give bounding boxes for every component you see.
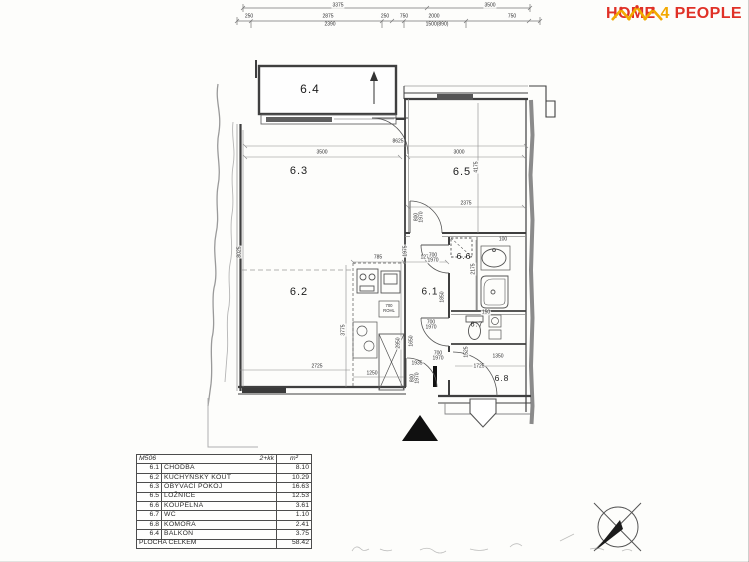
area-unit-header: m² [277,455,312,464]
table-row: 6.1CHODBA8.10 [137,464,312,473]
cell-name: BALKON [162,530,277,539]
logo-word-people: PEOPLE [675,5,742,22]
cell-area: 1.10 [277,511,312,520]
table-row: 6.3OBÝVACÍ POKOJ16.63 [137,483,312,492]
cell-name: KUCHYŇSKÝ KOUT [162,473,277,482]
table-row: 6.5LOŽNICE12.53 [137,492,312,501]
cell-code: 6.8 [137,520,162,529]
total-value: 58.42 [277,539,312,548]
table-row: 6.8KOMORA2.41 [137,520,312,529]
cell-area: 3.61 [277,501,312,510]
cell-area: 16.63 [277,483,312,492]
balcony-outline [256,60,396,114]
floor-plan-drawing [0,0,749,562]
layout-type: 2+kk [259,456,274,463]
cell-area: 12.53 [277,492,312,501]
outer-walls [237,86,555,424]
cell-name: KOMORA [162,520,277,529]
kitchen-fixtures [353,263,404,390]
handwritten-scribble [352,534,632,553]
bathroom-fixtures [451,238,510,308]
top-dimension-chains [235,4,542,28]
cell-name: WC [162,511,277,520]
cell-code: 6.4 [137,530,162,539]
shower [481,276,508,308]
crown-icon [605,5,669,22]
storage-door-leaf [470,399,496,427]
cell-area: 2.41 [277,520,312,529]
cell-name: KOUPELNA [162,501,277,510]
cell-code: 6.3 [137,483,162,492]
table-row: 6.4BALKON3.75 [137,530,312,539]
unit-code: M506 [139,456,156,463]
cell-code: 6.5 [137,492,162,501]
tall-cabinet [379,334,404,390]
toilet [469,323,481,340]
wc-fixtures [466,315,501,340]
cell-name: LOŽNICE [162,492,277,501]
scanned-floor-plan-sheet: 337535002502875250750200075023901500(890… [0,0,749,562]
cell-code: 6.7 [137,511,162,520]
cell-name: CHODBA [162,464,277,473]
cell-area: 10.29 [277,473,312,482]
area-table: M5062+kk m² 6.1CHODBA8.106.2KUCHYŇSKÝ KO… [136,454,312,549]
cell-area: 8.10 [277,464,312,473]
cell-code: 6.1 [137,464,162,473]
cell-name: OBÝVACÍ POKOJ [162,483,277,492]
cell-code: 6.6 [137,501,162,510]
table-header-left: M5062+kk [137,455,277,464]
cell-code: 6.2 [137,473,162,482]
entrance-door [406,358,437,387]
interior-doors [410,201,497,427]
window-band [261,115,396,124]
table-row: 6.2KUCHYŇSKÝ KOUT10.29 [137,473,312,482]
entrance-marker [402,415,438,441]
interior-walls [405,99,526,397]
table-row: 6.6KOUPELNA3.61 [137,501,312,510]
total-label: PLOCHA CELKEM [137,539,277,548]
home4people-logo: HOME 4 PEOPLE [605,5,743,23]
table-header-row: M5062+kk m² [137,455,312,464]
table-row: 6.7WC1.10 [137,511,312,520]
compass-icon [594,503,641,551]
cell-area: 3.75 [277,530,312,539]
area-table-body: M5062+kk m² 6.1CHODBA8.106.2KUCHYŇSKÝ KO… [137,455,312,540]
table-footer-row: PLOCHA CELKEM 58.42 [137,539,312,548]
